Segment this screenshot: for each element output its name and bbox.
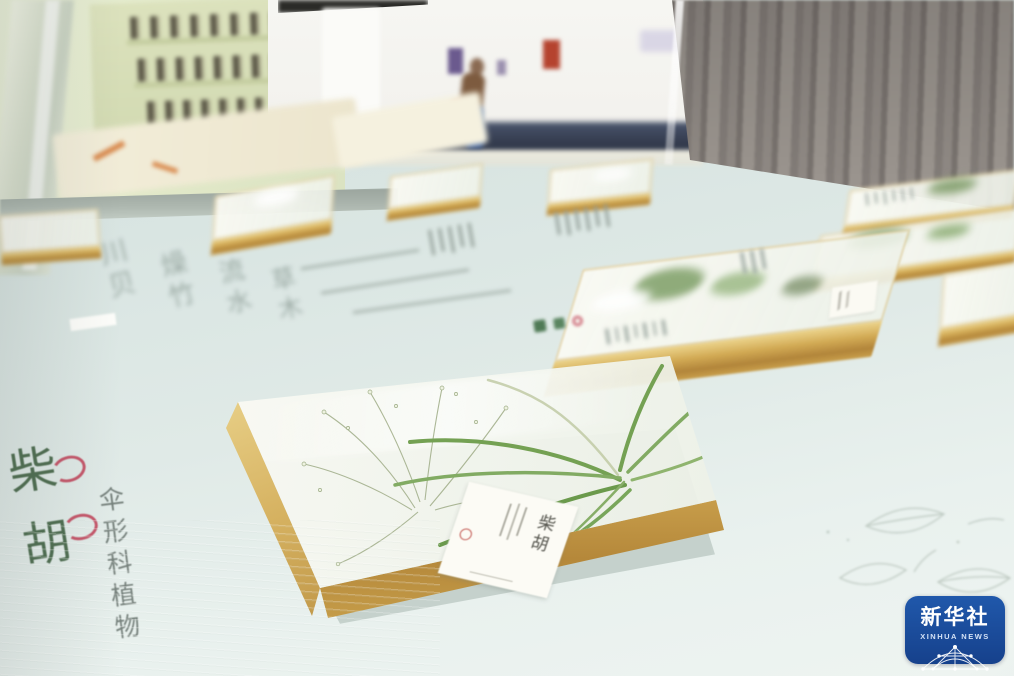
xinhua-cn: 新华社 <box>905 601 1005 631</box>
illegible-text-cluster <box>428 222 475 256</box>
table-inscription-column: 流水 <box>209 255 258 324</box>
tag-seal <box>458 527 474 541</box>
paper-texture <box>0 520 440 676</box>
exhibition-photo: 川贝 燥竹 流水 草木 <box>0 0 1014 676</box>
specimen-tag-name: 柴胡 <box>522 511 560 557</box>
illegible-text-row <box>301 249 420 270</box>
table-inscription-column: 燥竹 <box>151 246 202 317</box>
illegible-text-row <box>321 268 470 294</box>
table-inscription-column: 川贝 <box>89 234 143 307</box>
paper-chip <box>69 313 116 331</box>
table-inscription-column: 草木 <box>262 263 310 329</box>
xinhua-en: XINHUA NEWS <box>905 632 1005 641</box>
specimen-block <box>387 163 483 221</box>
specimen-block <box>0 209 102 266</box>
xinhua-globe-icon <box>919 643 991 671</box>
wall-frame-red <box>543 40 560 69</box>
xinhua-watermark: 新华社 XINHUA NEWS <box>905 596 1005 664</box>
illegible-text-cluster <box>740 248 767 276</box>
illegible-text-row <box>353 289 512 314</box>
